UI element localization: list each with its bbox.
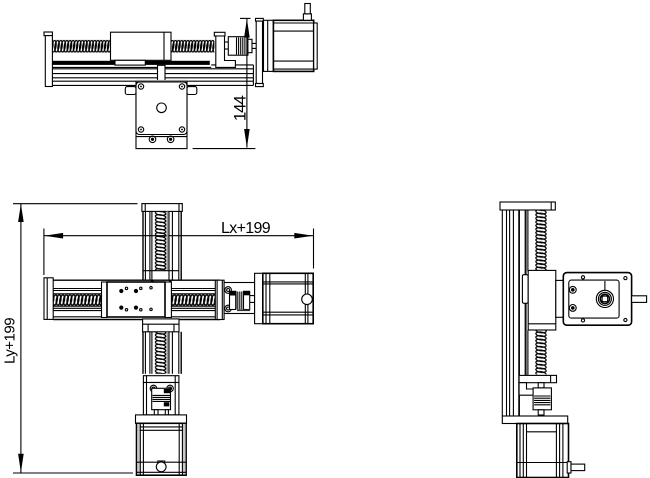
svg-text:144: 144 [230, 96, 249, 122]
svg-text:Lx+199: Lx+199 [221, 220, 271, 237]
svg-text:Ly+199: Ly+199 [1, 318, 18, 364]
